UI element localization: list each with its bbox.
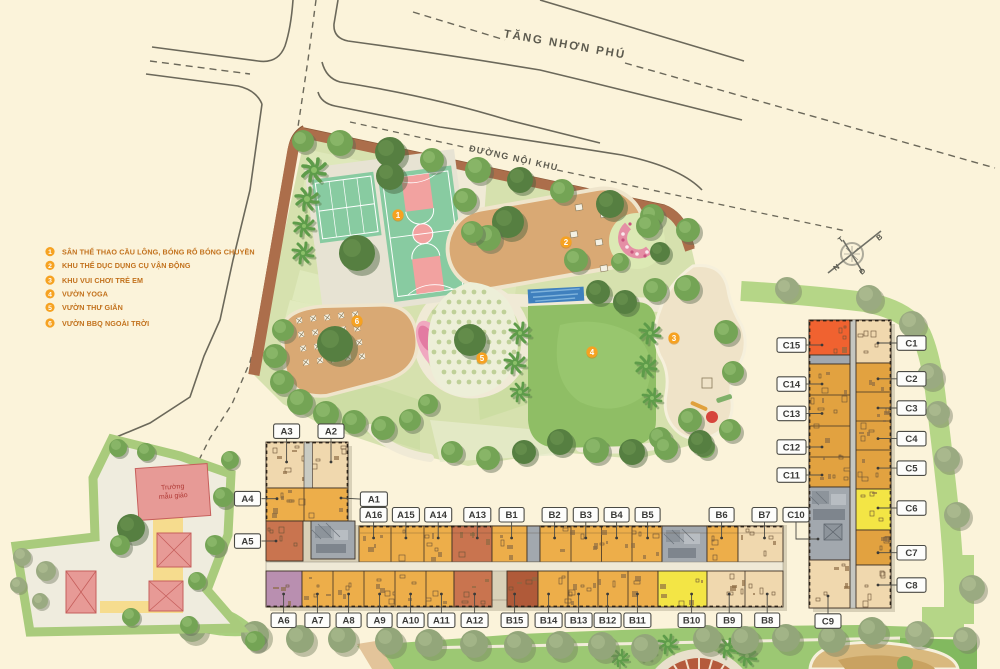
- svg-text:VƯỜN YOGA: VƯỜN YOGA: [62, 290, 108, 299]
- svg-text:C14: C14: [783, 379, 801, 390]
- svg-text:C11: C11: [783, 470, 801, 481]
- svg-text:1: 1: [48, 249, 52, 256]
- svg-text:B8: B8: [761, 616, 773, 627]
- svg-text:C9: C9: [822, 616, 834, 627]
- svg-text:6: 6: [355, 317, 360, 326]
- svg-text:C5: C5: [905, 464, 918, 475]
- svg-text:B15: B15: [506, 616, 524, 627]
- svg-text:B10: B10: [683, 616, 700, 627]
- svg-text:C8: C8: [905, 580, 917, 591]
- svg-text:C2: C2: [905, 374, 917, 385]
- svg-text:A2: A2: [325, 427, 337, 438]
- svg-text:C6: C6: [905, 503, 917, 514]
- svg-text:2: 2: [48, 263, 52, 270]
- svg-text:B7: B7: [758, 510, 770, 521]
- svg-text:B1: B1: [506, 510, 519, 521]
- svg-text:C7: C7: [905, 548, 917, 559]
- svg-text:A8: A8: [343, 616, 355, 627]
- svg-text:A11: A11: [433, 616, 451, 627]
- svg-text:1: 1: [396, 211, 401, 220]
- svg-text:A13: A13: [469, 510, 486, 521]
- svg-text:C3: C3: [905, 403, 917, 414]
- svg-text:A1: A1: [368, 495, 381, 506]
- svg-text:A6: A6: [278, 616, 290, 627]
- svg-text:B5: B5: [642, 510, 655, 521]
- svg-text:C13: C13: [783, 409, 800, 420]
- svg-text:3: 3: [48, 278, 52, 285]
- svg-text:VƯỜN BBQ NGOÀI TRỜI: VƯỜN BBQ NGOÀI TRỜI: [62, 319, 149, 328]
- svg-text:SÂN THỂ THAO CẦU LÔNG, BÓNG RỔ: SÂN THỂ THAO CẦU LÔNG, BÓNG RỔ BÓNG CHUY…: [62, 246, 255, 256]
- svg-text:B4: B4: [611, 510, 624, 521]
- svg-text:A16: A16: [365, 510, 382, 521]
- svg-text:C15: C15: [783, 340, 801, 351]
- svg-text:KHU THỂ DỤC DỤNG CỤ VẬN ĐỘNG: KHU THỂ DỤC DỤNG CỤ VẬN ĐỘNG: [62, 261, 191, 270]
- svg-text:5: 5: [480, 354, 485, 363]
- svg-text:A7: A7: [311, 616, 323, 627]
- svg-text:B2: B2: [549, 510, 561, 521]
- svg-text:2: 2: [564, 238, 569, 247]
- svg-text:C10: C10: [787, 510, 804, 521]
- svg-text:6: 6: [48, 320, 52, 327]
- svg-text:B6: B6: [716, 510, 728, 521]
- svg-text:KHU VUI CHƠI TRẺ EM: KHU VUI CHƠI TRẺ EM: [62, 276, 143, 285]
- svg-text:A3: A3: [281, 427, 293, 438]
- svg-text:5: 5: [48, 305, 52, 312]
- svg-text:VƯỜN THƯ GIÃN: VƯỜN THƯ GIÃN: [62, 303, 123, 312]
- svg-text:A14: A14: [429, 510, 447, 521]
- svg-text:A4: A4: [241, 494, 254, 505]
- svg-text:A12: A12: [466, 616, 483, 627]
- svg-text:B11: B11: [629, 616, 647, 627]
- svg-text:4: 4: [590, 348, 595, 357]
- svg-text:4: 4: [48, 291, 52, 298]
- svg-text:A10: A10: [402, 616, 419, 627]
- svg-text:B12: B12: [599, 616, 616, 627]
- svg-text:3: 3: [672, 334, 677, 343]
- svg-text:C4: C4: [905, 434, 918, 445]
- svg-text:A15: A15: [397, 510, 415, 521]
- svg-text:B13: B13: [570, 616, 587, 627]
- svg-text:B9: B9: [723, 616, 735, 627]
- svg-text:B14: B14: [540, 616, 558, 627]
- svg-text:A5: A5: [241, 536, 254, 547]
- svg-text:A9: A9: [374, 616, 386, 627]
- svg-text:C12: C12: [783, 442, 800, 453]
- svg-text:C1: C1: [905, 338, 918, 349]
- svg-text:B3: B3: [580, 510, 592, 521]
